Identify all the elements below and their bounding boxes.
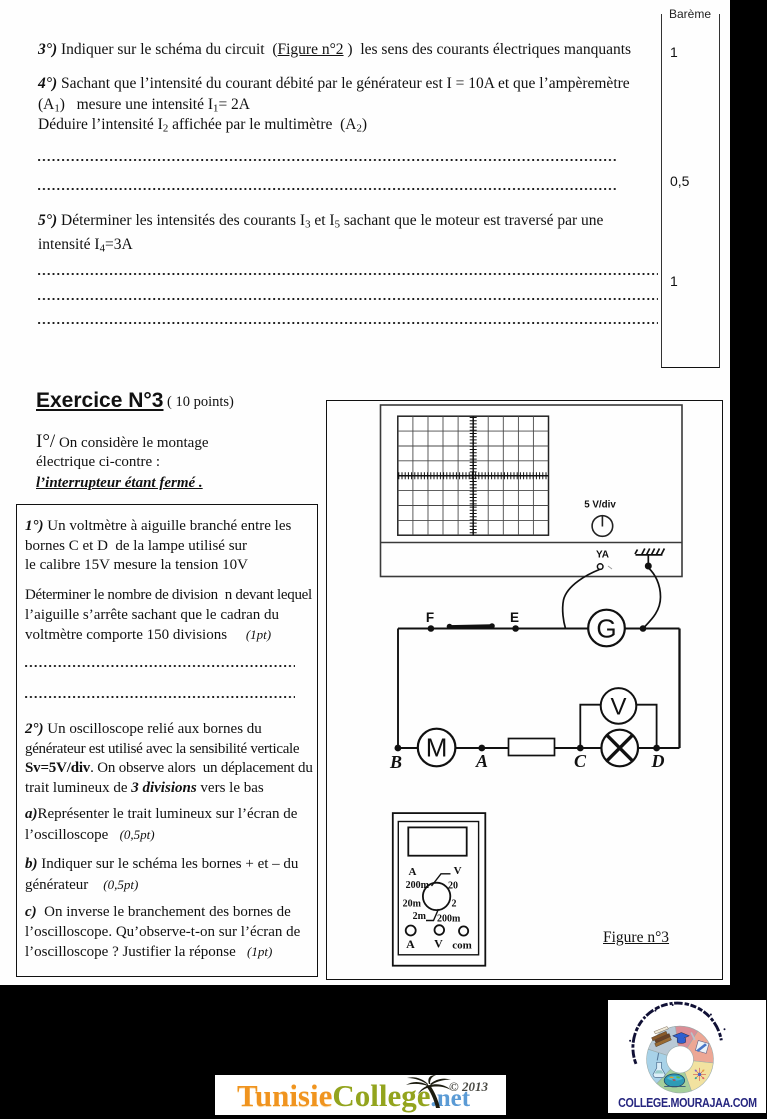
svg-text:200m: 200m: [437, 914, 461, 925]
svg-text:20: 20: [448, 881, 458, 892]
svg-text:2m: 2m: [413, 911, 427, 922]
svg-text:com: com: [452, 940, 472, 952]
svg-text:V: V: [454, 865, 462, 877]
svg-text:E: E: [510, 610, 519, 625]
svg-text:G: G: [596, 614, 616, 644]
svg-text:M: M: [426, 733, 448, 763]
svg-text:A: A: [409, 866, 417, 878]
svg-text:20m: 20m: [403, 899, 422, 910]
svg-text:C: C: [574, 751, 587, 771]
svg-text:COLLEGE.MOURAJAA.COM: COLLEGE.MOURAJAA.COM: [618, 1095, 757, 1110]
svg-text:2: 2: [452, 899, 457, 910]
svg-text:D: D: [651, 751, 665, 771]
svg-text:V: V: [434, 937, 443, 951]
svg-text:YA: YA: [596, 550, 609, 561]
svg-text:B: B: [389, 752, 402, 772]
svg-text:V: V: [610, 694, 626, 721]
svg-text:200m: 200m: [406, 880, 430, 891]
svg-text:5 V/div: 5 V/div: [584, 500, 616, 511]
svg-text:A: A: [475, 751, 488, 771]
svg-text:A: A: [406, 937, 415, 951]
svg-text:F: F: [426, 610, 434, 625]
